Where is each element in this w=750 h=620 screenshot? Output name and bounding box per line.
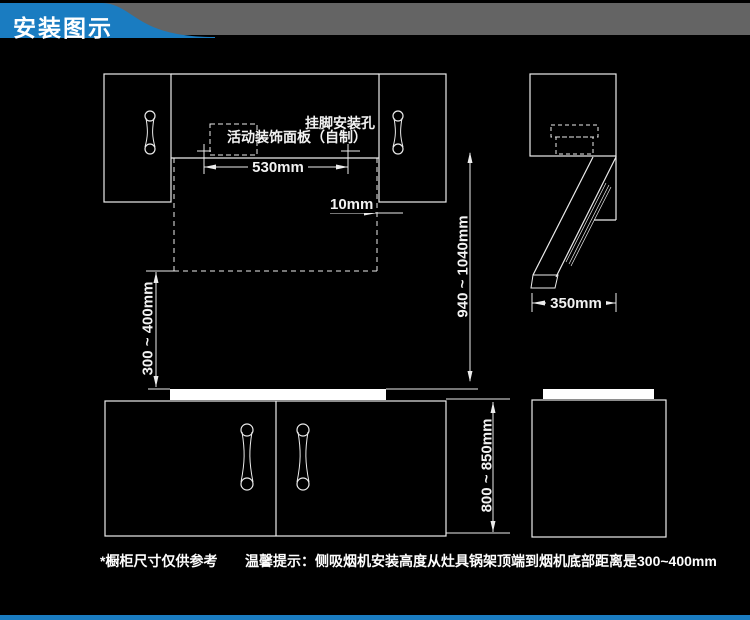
upper-cabinet-side xyxy=(530,74,616,156)
technical-drawing xyxy=(0,0,750,620)
cabinet-handle-icon xyxy=(145,111,155,154)
countertop-front xyxy=(170,389,386,400)
base-cabinet-front xyxy=(105,401,446,536)
cabinet-handle-icon xyxy=(297,424,309,490)
footnote-tip: 温馨提示：侧吸烟机安装高度从灶具锅架顶端到烟机底部距离是300~400mm xyxy=(245,551,717,571)
countertop-side xyxy=(543,389,654,399)
dim-label-940-1040mm: 940 ~ 1040mm xyxy=(455,202,472,332)
label-decorative-panel: 活动装饰面板（自制） xyxy=(227,127,367,147)
cabinet-handle-icon xyxy=(393,111,403,154)
cabinet-handle-icon xyxy=(241,424,253,490)
dim-label-530mm: 530mm xyxy=(248,159,308,176)
dim-label-300-400mm: 300 ~ 400mm xyxy=(140,264,157,394)
dim-label-10mm: 10mm xyxy=(328,196,375,213)
dim-label-350mm: 350mm xyxy=(546,295,606,312)
hood-side-profile xyxy=(531,156,616,288)
installation-diagram-page: 安装图示 xyxy=(0,0,750,620)
mounting-bracket-side xyxy=(551,125,598,154)
base-cabinet-side xyxy=(532,400,666,537)
dim-label-800-850mm: 800 ~ 850mm xyxy=(479,401,496,531)
footer-accent-bar xyxy=(0,615,750,620)
footnote-reference: *橱柜尺寸仅供参考 xyxy=(100,551,217,571)
